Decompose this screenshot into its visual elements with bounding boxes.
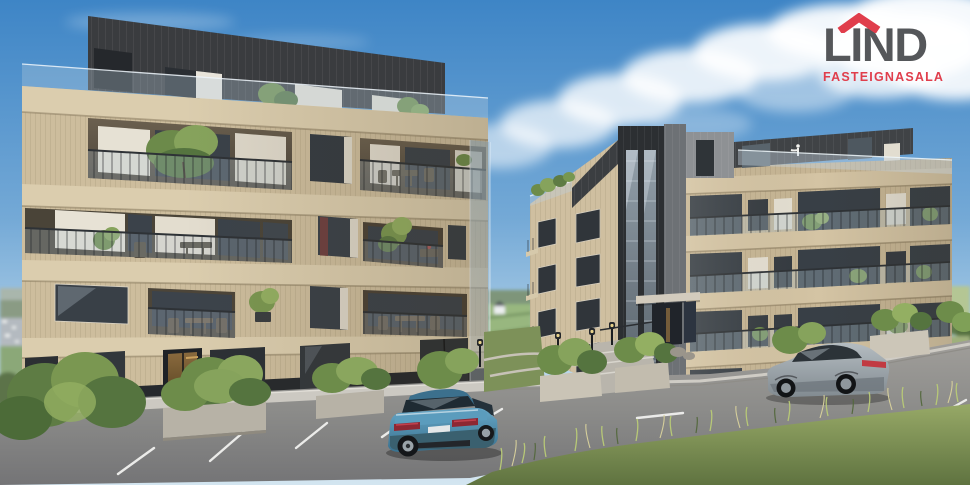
planter-left-1 xyxy=(161,369,271,441)
brand-name: LIND xyxy=(823,26,950,64)
rendering-canvas: LIND FASTEIGNASALA xyxy=(0,0,970,485)
brand-tagline: FASTEIGNASALA xyxy=(823,70,950,84)
roof-icon xyxy=(837,13,881,33)
lind-logo: LIND FASTEIGNASALA xyxy=(820,26,950,84)
